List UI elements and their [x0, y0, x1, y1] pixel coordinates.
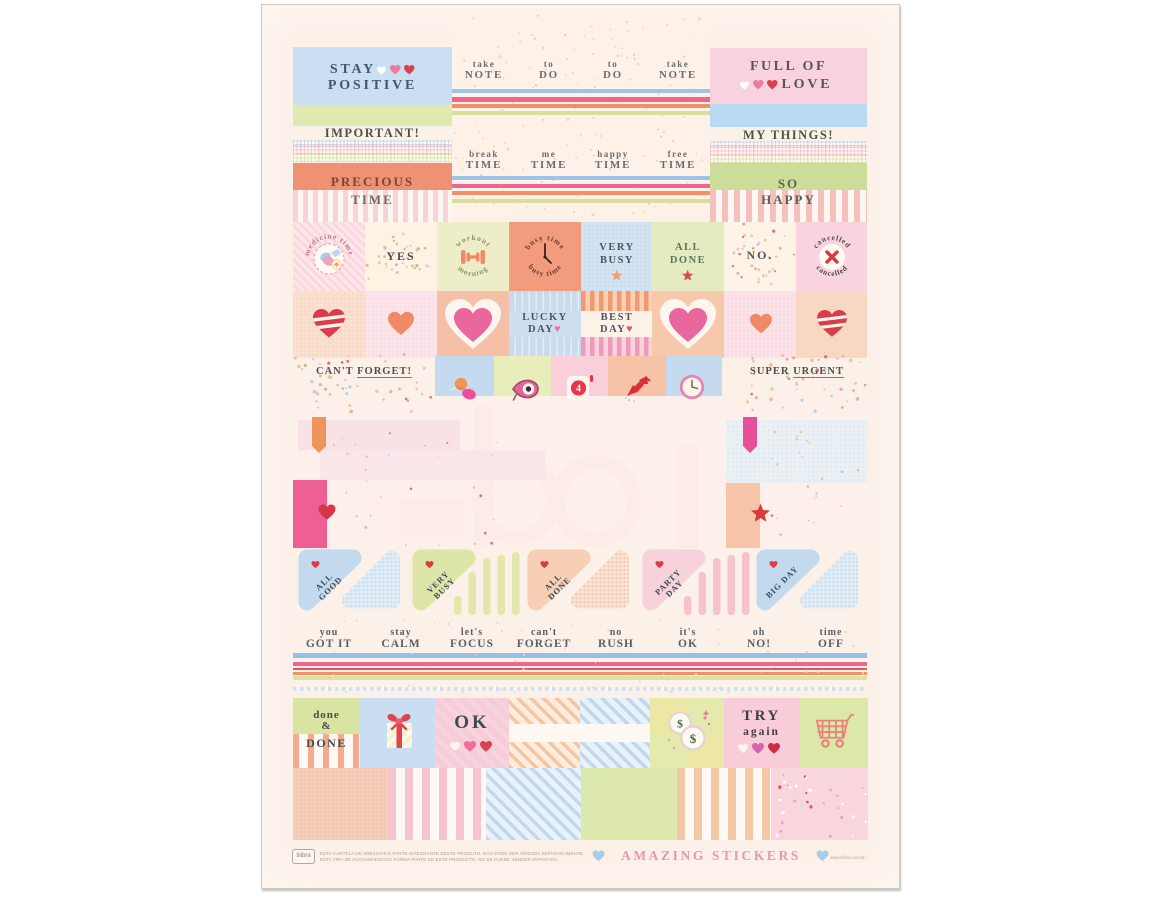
svg-text:workout: workout: [453, 233, 493, 249]
svg-text:$: $: [690, 731, 697, 746]
svg-text:4: 4: [576, 384, 581, 395]
svg-text:morning: morning: [456, 264, 489, 278]
svg-text:$: $: [677, 717, 683, 731]
svg-text:busy time: busy time: [526, 262, 563, 278]
